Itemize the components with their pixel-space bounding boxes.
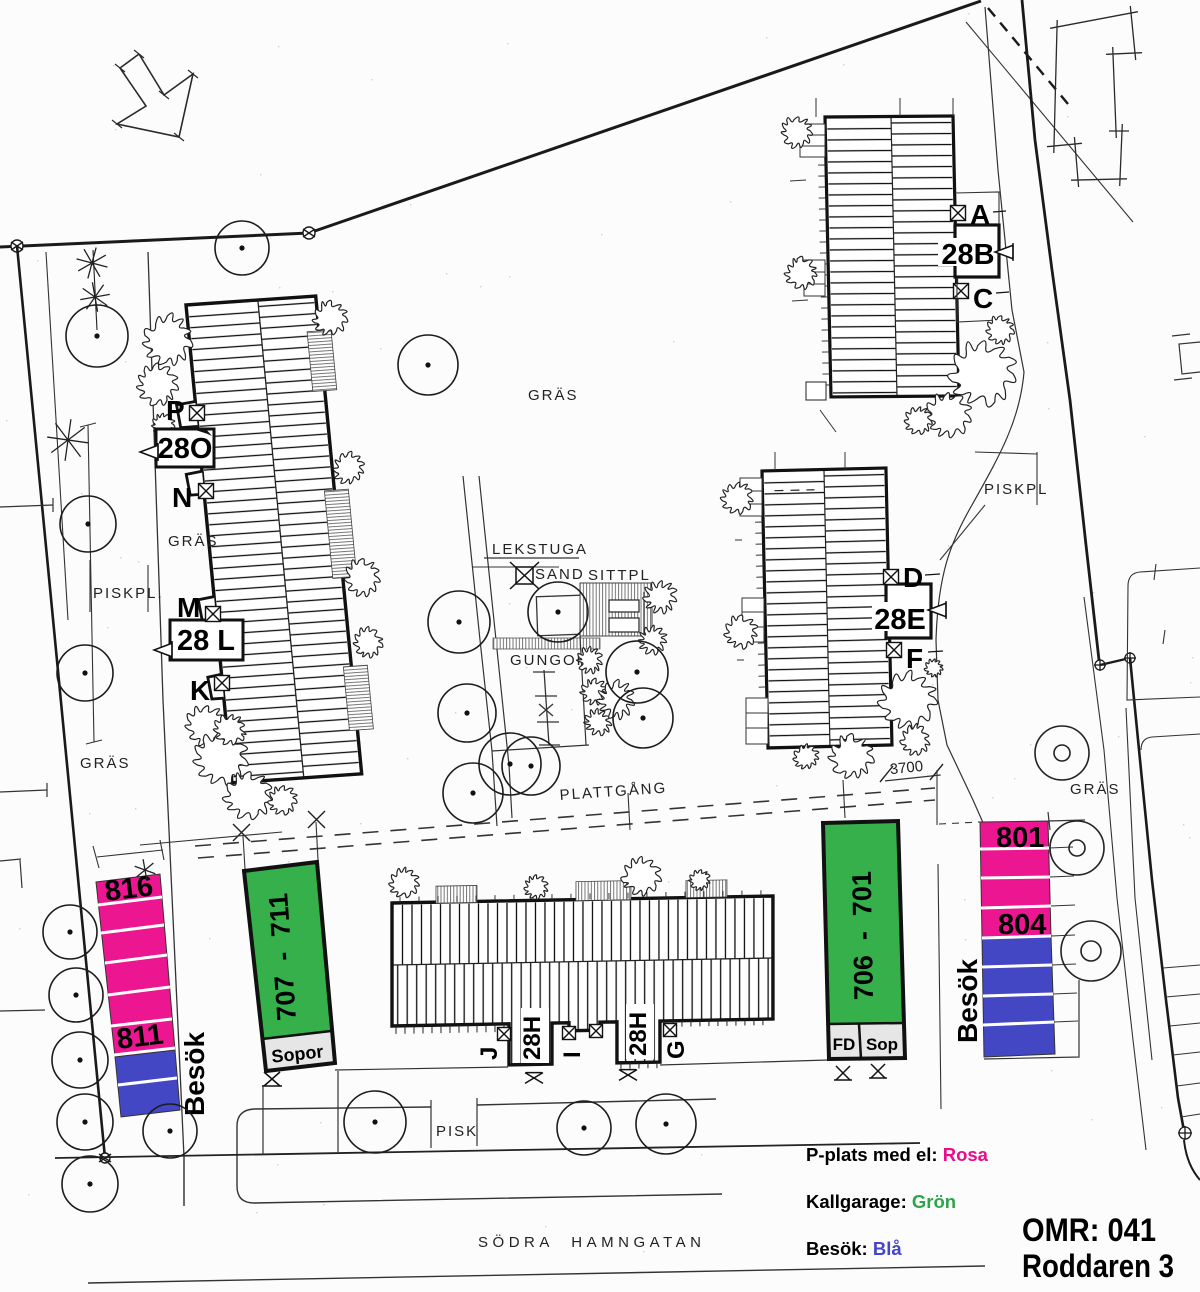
svg-text:28B: 28B [941,239,994,271]
svg-text:M: M [177,592,200,623]
svg-text:GRÄS: GRÄS [80,755,131,772]
svg-text:816: 816 [103,870,155,908]
svg-text:F: F [906,643,923,674]
svg-text:A: A [970,199,990,230]
svg-text:SÖDRA HAMNGATAN: SÖDRA HAMNGATAN [478,1233,703,1251]
svg-text:SAND: SAND [535,566,585,583]
svg-text:Besök: Besök [952,959,983,1043]
svg-text:N: N [172,482,192,513]
svg-text:FD: FD [833,1035,856,1054]
svg-text:28O: 28O [158,433,213,465]
svg-text:Roddaren 3: Roddaren 3 [1022,1248,1174,1284]
svg-text:PISKPL: PISKPL [984,481,1049,498]
svg-text:LEKSTUGA: LEKSTUGA [492,541,588,558]
svg-text:Besök: Blå: Besök: Blå [806,1238,902,1259]
svg-text:GRÄS: GRÄS [1070,781,1121,798]
svg-text:P-plats med el: Rosa: P-plats med el: Rosa [806,1144,989,1165]
svg-text:I: I [559,1051,586,1058]
svg-text:28E: 28E [874,604,926,636]
svg-text:801: 801 [996,822,1044,854]
svg-text:D: D [903,562,923,593]
svg-text:28H: 28H [625,1012,652,1056]
svg-text:804: 804 [998,909,1046,941]
svg-text:Kallgarage: Grön: Kallgarage: Grön [806,1191,956,1212]
svg-text:706 - 701: 706 - 701 [847,871,879,1001]
svg-text:P: P [166,395,185,426]
svg-text:PISK: PISK [436,1123,478,1140]
svg-text:J: J [476,1047,503,1060]
svg-text:K: K [190,675,210,706]
svg-text:GRÄS: GRÄS [528,387,579,404]
svg-text:SITTPL: SITTPL [588,567,651,584]
svg-text:PISKPL.: PISKPL. [93,585,164,602]
svg-text:Besök: Besök [179,1032,210,1116]
svg-text:C: C [973,283,993,314]
svg-text:28 L: 28 L [177,625,235,657]
svg-text:Sop: Sop [866,1035,898,1054]
svg-text:28H: 28H [519,1016,546,1060]
svg-text:3700: 3700 [889,758,924,778]
svg-text:OMR: 041: OMR: 041 [1022,1212,1156,1248]
svg-text:GRÄS: GRÄS [168,533,219,550]
svg-text:G: G [663,1040,690,1059]
svg-text:811: 811 [115,1018,165,1055]
